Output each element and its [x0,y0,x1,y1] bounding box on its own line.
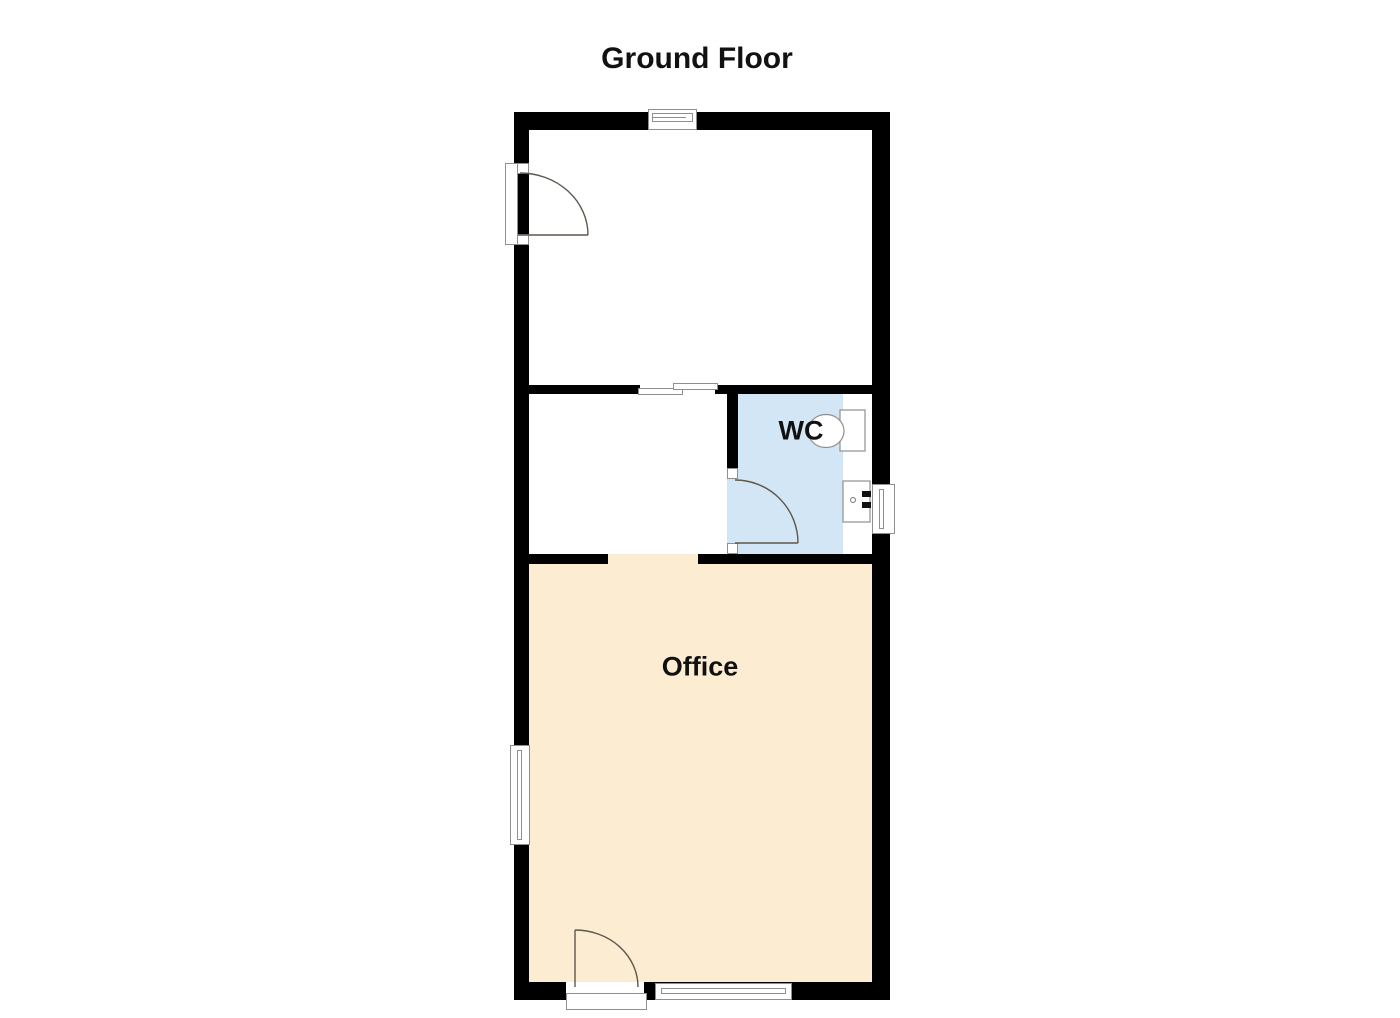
wc-room-label: WC [779,416,824,447]
top-wall-window-mullion [653,117,686,118]
interior-wall-upper-right [715,385,872,394]
top-wall-window [648,109,697,130]
office-bottom-window [655,983,792,1000]
sliding-door-panel-upper [673,383,718,390]
exterior-wall-top [514,112,890,130]
exterior-wall-right [872,112,890,1000]
office-doorway-floor [608,554,698,564]
interior-wall-upper-left [529,385,640,394]
office-room-floor [529,564,872,982]
top-wall-window-glazing [652,113,693,122]
floor-title: Ground Floor [601,42,793,76]
wc-right-window-glazing [879,489,884,529]
wc-doorway-floor [727,479,738,543]
interior-wall-wc-vertical [727,394,738,468]
exterior-wall-left [514,112,529,1000]
office-bottom-window-glazing [661,988,786,994]
interior-wall-lower-right [698,554,872,564]
wc-right-window [872,484,895,534]
office-entry-door-threshold [566,993,647,1010]
office-left-window [510,745,530,845]
wc-door-jamb-upper [727,468,738,479]
office-room-label: Office [662,652,739,683]
floorplan: Ground Floor [0,0,1400,1018]
top-room-floor [529,130,872,385]
interior-wall-lower-left [529,554,608,564]
office-left-window-glazing [517,750,522,840]
top-room-door-frame [505,163,518,245]
wc-door-jamb-lower [727,543,738,554]
wc-side-strip [843,394,872,554]
middle-room-floor [529,394,727,554]
